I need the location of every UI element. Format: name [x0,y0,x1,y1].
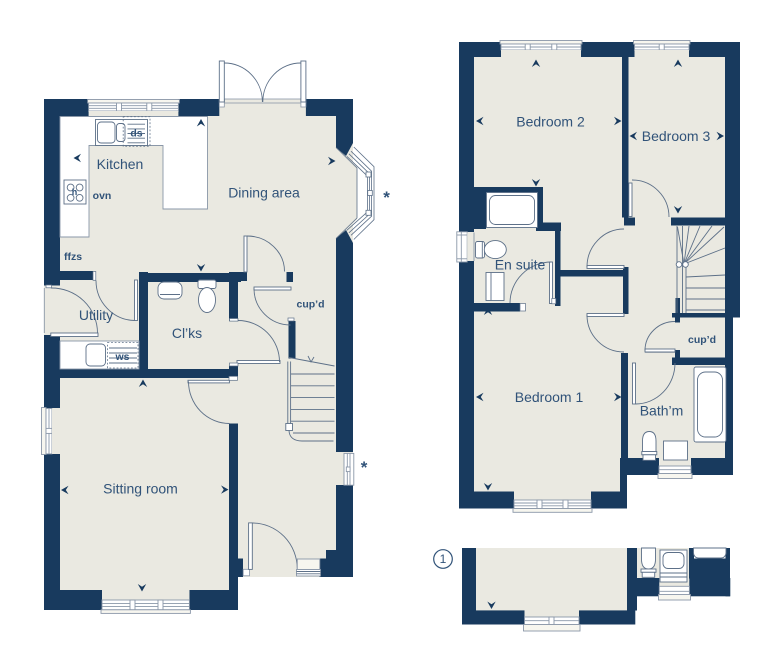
svg-text:Sitting room: Sitting room [103,481,178,497]
svg-text:Utility: Utility [79,307,113,323]
svg-text:cup’d: cup’d [688,334,716,346]
svg-text:1: 1 [440,552,447,566]
svg-text:*: * [383,188,390,207]
svg-text:Bedroom 2: Bedroom 2 [516,114,585,130]
svg-text:En suite: En suite [495,257,546,273]
svg-text:ws: ws [114,351,129,363]
svg-text:Cl’ks: Cl’ks [172,325,202,341]
svg-text:Bedroom 1: Bedroom 1 [515,389,584,405]
svg-text:*: * [361,458,368,477]
svg-text:h: h [72,187,78,197]
svg-text:Bedroom 3: Bedroom 3 [642,128,711,144]
svg-text:Bath’m: Bath’m [640,403,684,419]
svg-text:Dining area: Dining area [228,185,300,201]
svg-text:ovn: ovn [93,190,112,202]
svg-text:ffzs: ffzs [64,251,82,263]
svg-text:ds: ds [130,128,142,140]
svg-text:Kitchen: Kitchen [97,156,144,172]
svg-text:cup’d: cup’d [297,299,325,311]
